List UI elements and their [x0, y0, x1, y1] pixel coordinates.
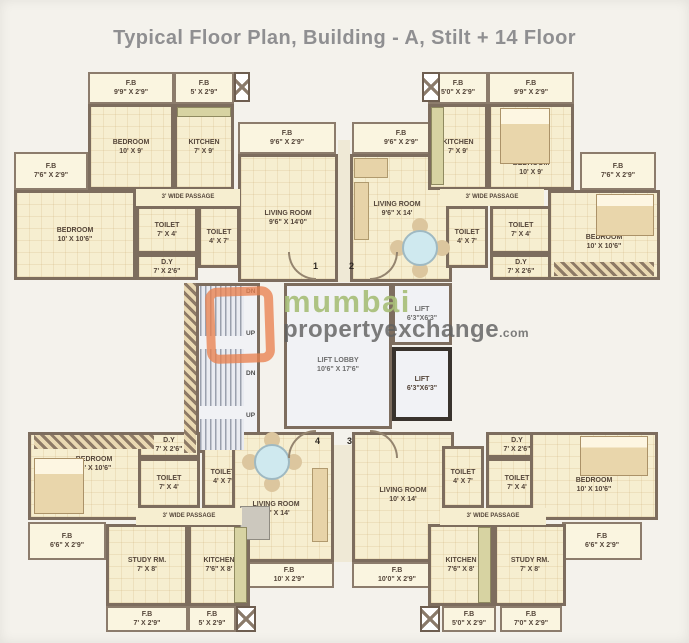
room-name: D.Y: [156, 436, 183, 445]
room-dims: 9'6" X 14'0": [264, 218, 311, 227]
room-name: KITCHEN: [188, 138, 219, 147]
duct-shaft: [236, 606, 256, 632]
kitchen-counter: [478, 527, 491, 603]
room-name: F.B: [274, 566, 305, 575]
room-dims: 10'0" X 2'9": [378, 575, 416, 584]
room-dims: 7' X 8': [511, 565, 549, 574]
duct-shaft: [234, 72, 250, 102]
room-name: STUDY RM.: [511, 556, 549, 565]
unit2-toilet-b: TOILET7' X 4': [490, 206, 552, 254]
bed-furniture: [596, 194, 654, 236]
unit1-passage: 3' WIDE PASSAGE: [136, 189, 240, 206]
unit3-toilet-a: TOILET4' X 7': [442, 446, 484, 508]
room-name: BEDROOM: [57, 226, 94, 235]
unit1-toilet-a: TOILET7' X 4': [136, 206, 198, 254]
room-dims: 7' X 2'6": [154, 267, 181, 276]
room-dims: 10' X 9': [513, 168, 550, 177]
room-name: BEDROOM: [113, 138, 150, 147]
watermark-brand-bottom: propertyexchange: [283, 316, 499, 343]
room-name: STUDY RM.: [128, 556, 166, 565]
kitchen-counter: [177, 107, 231, 117]
room-dims: 4' X 7': [451, 477, 476, 486]
room-name: TOILET: [155, 221, 180, 230]
room-dims: 4' X 7': [207, 237, 232, 246]
sofa-furniture: [312, 468, 328, 542]
room-dims: 7' X 9': [442, 147, 473, 156]
room-name: 3' WIDE PASSAGE: [466, 193, 519, 202]
room-dims: 6'6" X 2'9": [585, 541, 619, 550]
room-dims: 7' X 2'6": [508, 267, 535, 276]
sofa-furniture: [354, 158, 388, 178]
room-dims: 9'9" X 2'9": [514, 88, 548, 97]
balcony-rail: [34, 435, 154, 449]
room-dims: 4' X 7': [455, 237, 480, 246]
unit4-fb-study-balcony: F.B7' X 2'9": [106, 606, 188, 632]
unit2-fb-side-balcony: F.B7'6" X 2'9": [580, 152, 656, 190]
room-name: TOILET: [509, 221, 534, 230]
unit3-fb-study-balcony: F.B7'0" X 2'9": [500, 606, 562, 632]
dining-table: [402, 230, 438, 266]
room-dims: 7' X 4': [157, 483, 182, 492]
room-name: F.B: [114, 79, 148, 88]
room-name: TOILET: [207, 228, 232, 237]
room-dims: 7'6" X 8': [445, 565, 476, 574]
unit4-fb-kitchen-balcony: F.B5' X 2'9": [188, 606, 236, 632]
room-name: D.Y: [508, 258, 535, 267]
unit1-living-room: LIVING ROOM9'6" X 14'0": [238, 154, 338, 282]
room-dims: 5'0" X 2'9": [441, 88, 475, 97]
room-dims: 7' X 4': [505, 483, 530, 492]
unit1-dry-yard: D.Y7' X 2'6": [136, 254, 198, 280]
room-dims: 10' X 10'6": [586, 242, 623, 251]
room-name: D.Y: [154, 258, 181, 267]
room-dims: 7'6" X 8': [203, 565, 234, 574]
room-name: F.B: [585, 532, 619, 541]
room-dims: 5' X 2'9": [191, 88, 218, 97]
duct-shaft: [422, 72, 440, 102]
room-dims: 10' X 10'6": [57, 235, 94, 244]
room-name: KITCHEN: [442, 138, 473, 147]
unit1-fb-side-balcony: F.B7'6" X 2'9": [14, 152, 88, 190]
room-name: TOILET: [157, 474, 182, 483]
room-dims: 6'6" X 2'9": [50, 541, 84, 550]
room-name: F.B: [199, 610, 226, 619]
room-dims: 10'6" X 17'6": [287, 365, 389, 374]
unit2-toilet-a: TOILET4' X 7': [446, 206, 488, 268]
flat-number-2: 2: [349, 261, 354, 271]
room-name: D.Y: [504, 436, 531, 445]
sofa-furniture: [354, 182, 369, 240]
room-dims: 7' X 8': [128, 565, 166, 574]
room-dims: 5' X 2'9": [199, 619, 226, 628]
unit3-fb-side-balcony: F.B6'6" X 2'9": [562, 522, 642, 560]
bed-furniture: [34, 458, 84, 514]
unit4-passage: 3' WIDE PASSAGE: [136, 508, 242, 525]
room-name: F.B: [384, 129, 418, 138]
room-dims: 7' X 4': [509, 230, 534, 239]
room-name: TOILET: [451, 468, 476, 477]
watermark: mumbai propertyexchange.com: [206, 287, 529, 363]
room-name: 3' WIDE PASSAGE: [467, 512, 520, 521]
room-name: LIFT: [407, 375, 437, 384]
room-name: F.B: [134, 610, 161, 619]
balcony-rail: [554, 262, 654, 276]
unit1-fb-bedroom-balcony: F.B9'9" X 2'9": [88, 72, 174, 104]
room-name: F.B: [514, 610, 548, 619]
kitchen-counter: [234, 527, 247, 603]
room-name: BEDROOM: [576, 476, 613, 485]
room-dims: 9'6" X 2'9": [270, 138, 304, 147]
room-dims: 5'0" X 2'9": [452, 619, 486, 628]
unit4-fb-living-balcony: F.B10' X 2'9": [244, 562, 334, 588]
flat-number-1: 1: [313, 261, 318, 271]
unit1-toilet-b: TOILET4' X 7': [198, 206, 240, 268]
room-name: F.B: [601, 162, 635, 171]
unit3-fb-kitchen-balcony: F.B5'0" X 2'9": [442, 606, 496, 632]
room-name: F.B: [378, 566, 416, 575]
unit2-fb-bedroom-balcony: F.B9'9" X 2'9": [488, 72, 574, 104]
room-dims: 10' X 14': [379, 495, 426, 504]
unit1-bedroom-top: BEDROOM10' X 9': [88, 104, 174, 190]
room-dims: 7'6" X 2'9": [601, 171, 635, 180]
room-name: LIVING ROOM: [379, 486, 426, 495]
unit4-fb-side-balcony: F.B6'6" X 2'9": [28, 522, 106, 560]
stairs-up-label: UP: [246, 412, 255, 419]
flat-number-4: 4: [315, 436, 320, 446]
room-name: KITCHEN: [445, 556, 476, 565]
unit2-dry-yard: D.Y7' X 2'6": [490, 254, 552, 280]
bed-furniture: [500, 108, 550, 164]
room-name: F.B: [50, 532, 84, 541]
room-dims: 7' X 2'6": [156, 445, 183, 454]
unit1-bedroom-side: BEDROOM10' X 10'6": [14, 190, 136, 280]
room-dims: 7'6" X 2'9": [34, 171, 68, 180]
unit2-passage: 3' WIDE PASSAGE: [440, 189, 544, 206]
stair-landing: [200, 406, 244, 419]
stairs-dn-label: DN: [246, 370, 255, 377]
room-name: KITCHEN: [203, 556, 234, 565]
room-dims: 9'9" X 2'9": [114, 88, 148, 97]
room-dims: 7' X 4': [155, 230, 180, 239]
dining-table: [254, 444, 290, 480]
room-name: LIVING ROOM: [264, 209, 311, 218]
room-dims: 9'6" X 14': [373, 209, 420, 218]
room-name: F.B: [441, 79, 475, 88]
unit4-study-room: STUDY RM.7' X 8': [106, 524, 188, 606]
unit1-fb-kitchen-balcony: F.B5' X 2'9": [174, 72, 234, 104]
room-name: F.B: [514, 79, 548, 88]
room-dims: 7' X 2'9": [134, 619, 161, 628]
watermark-brand-suffix: .com: [499, 326, 529, 340]
room-dims: 7'0" X 2'9": [514, 619, 548, 628]
bed-furniture: [580, 436, 648, 476]
room-dims: 10' X 2'9": [274, 575, 305, 584]
room-dims: 9'6" X 2'9": [384, 138, 418, 147]
room-dims: 10' X 9': [113, 147, 150, 156]
room-name: 3' WIDE PASSAGE: [162, 193, 215, 202]
floor-plan-canvas: Typical Floor Plan, Building - A, Stilt …: [0, 0, 689, 643]
room-name: F.B: [34, 162, 68, 171]
room-name: LIVING ROOM: [373, 200, 420, 209]
room-name: 3' WIDE PASSAGE: [163, 512, 216, 521]
kitchen-counter: [431, 107, 444, 185]
watermark-brand-top: mumbai: [283, 287, 529, 317]
room-name: F.B: [191, 79, 218, 88]
unit4-toilet-a: TOILET7' X 4': [138, 458, 200, 508]
room-dims: 6'3"X6'3": [407, 384, 437, 393]
room-dims: 7' X 9': [188, 147, 219, 156]
room-dims: 7' X 2'6": [504, 445, 531, 454]
unit3-passage: 3' WIDE PASSAGE: [440, 508, 546, 525]
room-name: F.B: [452, 610, 486, 619]
unit3-study-room: STUDY RM.7' X 8': [494, 524, 566, 606]
watermark-logo-icon: [205, 286, 276, 364]
page-title: Typical Floor Plan, Building - A, Stilt …: [0, 27, 689, 50]
room-name: TOILET: [455, 228, 480, 237]
room-name: F.B: [270, 129, 304, 138]
room-name: TOILET: [505, 474, 530, 483]
room-dims: 10' X 10'6": [576, 485, 613, 494]
duct-shaft: [420, 606, 440, 632]
flat-number-3: 3: [347, 436, 352, 446]
balcony-rail: [184, 283, 196, 453]
unit1-fb-living-balcony: F.B9'6" X 2'9": [238, 122, 336, 154]
